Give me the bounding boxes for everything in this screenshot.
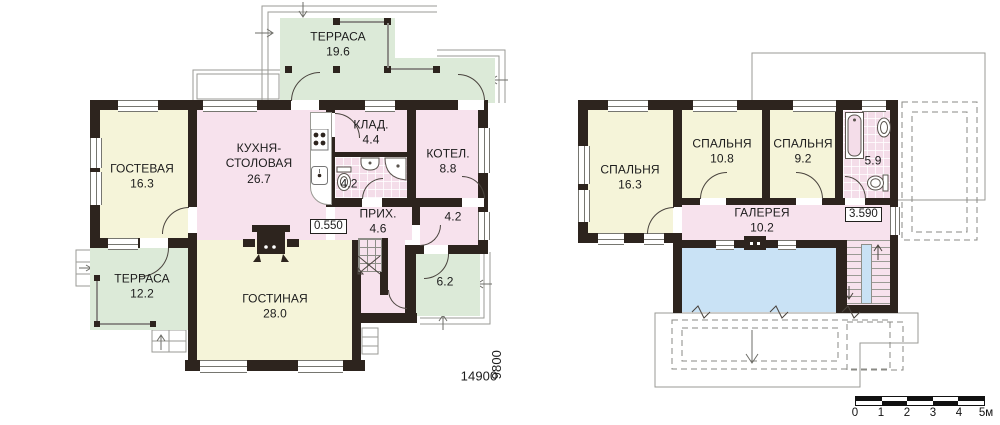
room-label-bedroom-2: СПАЛЬНЯ10.8 (692, 137, 751, 168)
second-floor-plan: СПАЛЬНЯ16.3 СПАЛЬНЯ10.8 СПАЛЬНЯ9.2 5.9 Г… (0, 0, 1000, 425)
window (793, 100, 836, 112)
break-marks (682, 303, 902, 319)
scale-tick-label: 1 (878, 407, 884, 419)
chimney-pillar (744, 236, 766, 250)
wall (673, 110, 682, 205)
scale-bar-labels: 0 1 2 3 4 5м (855, 407, 985, 421)
wall-pier (673, 240, 682, 313)
window (778, 240, 796, 250)
scale-bar: 0 1 2 3 4 5м (855, 396, 985, 422)
elevation-badge-second-floor: 3.590 (845, 207, 882, 222)
scale-tick-label: 4 (956, 407, 962, 419)
window (578, 146, 590, 184)
stairs-arrows (845, 242, 890, 304)
window (644, 233, 664, 245)
scale-tick-label: 0 (852, 407, 858, 419)
window (578, 190, 590, 222)
toilet-icon (866, 172, 890, 194)
bathtub-icon (845, 112, 865, 160)
sink-icon (875, 117, 891, 138)
floor-plan-drawing: ТЕРРАСА19.6 ГОСТЕВАЯ16.3 КУХНЯ-СТОЛОВАЯ2… (0, 0, 1000, 425)
window (716, 240, 734, 250)
window (693, 100, 737, 112)
window (608, 100, 648, 112)
door-opening (700, 198, 726, 205)
window (890, 207, 900, 235)
wall (835, 110, 843, 198)
room-label-gallery: ГАЛЕРЕЯ10.2 (734, 206, 789, 237)
scale-tick-label: 5м (979, 407, 993, 419)
scale-tick-label: 3 (930, 407, 936, 419)
wall (578, 233, 682, 243)
wall (762, 110, 770, 198)
scale-bar-strip (855, 396, 985, 406)
door-opening (796, 198, 822, 205)
room-label-bedroom-3: СПАЛЬНЯ9.2 (773, 137, 832, 168)
scale-tick-label: 2 (904, 407, 910, 419)
window (862, 100, 886, 112)
room-label-bedroom-1: СПАЛЬНЯ16.3 (600, 163, 659, 194)
door-opening (673, 207, 682, 233)
room-label-bath-59: 5.9 (865, 153, 882, 168)
door-opening (845, 198, 865, 205)
window (598, 233, 624, 245)
